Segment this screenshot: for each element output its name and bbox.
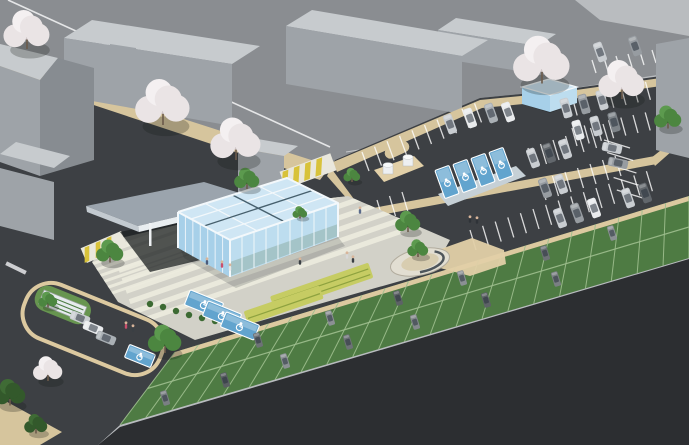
- person: [229, 263, 232, 270]
- person: [469, 215, 472, 222]
- site-plan-scene: Aerial axonometric architectural renderi…: [0, 0, 689, 445]
- shrub: [160, 304, 166, 310]
- shrub: [186, 312, 192, 318]
- person: [352, 255, 355, 262]
- person: [359, 206, 362, 213]
- building-facade: [656, 38, 689, 158]
- person: [346, 251, 349, 258]
- person: [206, 257, 209, 264]
- rooftop-unit: [110, 44, 136, 78]
- person: [221, 260, 224, 267]
- shrub: [147, 301, 153, 307]
- architectural-rendering: Aerial axonometric architectural renderi…: [0, 0, 689, 445]
- person: [132, 324, 135, 331]
- canopy-column: [149, 223, 152, 246]
- person: [476, 216, 479, 223]
- shrub: [173, 308, 179, 314]
- person: [125, 321, 128, 328]
- person: [299, 257, 302, 264]
